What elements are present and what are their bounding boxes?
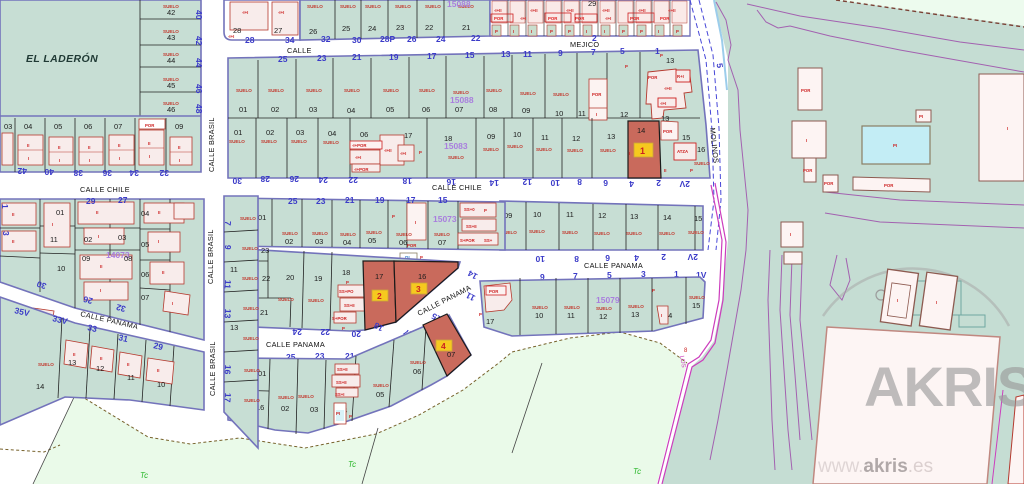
- svg-text:12: 12: [599, 312, 607, 321]
- svg-text:05: 05: [54, 122, 62, 131]
- svg-text:SUELO: SUELO: [323, 140, 339, 145]
- svg-text:II: II: [96, 210, 98, 215]
- svg-text:10: 10: [533, 210, 541, 219]
- svg-text:I: I: [149, 154, 150, 159]
- svg-text:I: I: [661, 313, 662, 318]
- svg-text:9: 9: [558, 48, 563, 58]
- svg-text:SUELO: SUELO: [689, 295, 705, 300]
- svg-text:24: 24: [436, 34, 446, 44]
- svg-text:6: 6: [603, 178, 608, 188]
- svg-text:II: II: [27, 143, 29, 148]
- svg-text:ATZA: ATZA: [677, 149, 688, 154]
- svg-text:25: 25: [278, 54, 288, 64]
- svg-text:01: 01: [239, 105, 247, 114]
- svg-text:1: 1: [655, 46, 660, 56]
- svg-text:I: I: [936, 300, 937, 305]
- svg-text:02: 02: [266, 128, 274, 137]
- svg-text:22: 22: [262, 274, 270, 283]
- svg-text:CALLE PANAMA: CALLE PANAMA: [266, 340, 325, 349]
- svg-text:07: 07: [114, 122, 122, 131]
- svg-text:SS+II: SS+II: [336, 380, 347, 385]
- svg-text:42: 42: [194, 36, 204, 46]
- svg-text:28P: 28P: [380, 34, 395, 44]
- svg-text:2V: 2V: [679, 179, 690, 189]
- svg-text:II: II: [118, 143, 120, 148]
- svg-text:09: 09: [175, 122, 183, 131]
- svg-text:SUELO: SUELO: [562, 230, 578, 235]
- svg-text:34: 34: [129, 168, 139, 178]
- svg-text:2V: 2V: [687, 252, 698, 262]
- svg-text:P: P: [346, 280, 349, 285]
- svg-text:06: 06: [413, 367, 421, 376]
- svg-text:CALLE CHILE: CALLE CHILE: [80, 185, 130, 194]
- svg-text:15088: 15088: [450, 95, 474, 105]
- svg-text:48: 48: [194, 104, 204, 114]
- svg-text:42: 42: [17, 166, 27, 176]
- svg-text:11: 11: [541, 133, 549, 142]
- svg-text:21: 21: [462, 23, 470, 32]
- svg-text:I: I: [658, 29, 659, 34]
- svg-text:12: 12: [96, 364, 104, 373]
- svg-text:POR: POR: [648, 75, 658, 80]
- svg-text:II: II: [157, 368, 159, 373]
- svg-text:11: 11: [222, 279, 233, 289]
- svg-text:I: I: [513, 29, 514, 34]
- svg-text:11: 11: [127, 373, 135, 382]
- svg-text:11: 11: [523, 49, 532, 59]
- svg-text:-I+POR: -I+POR: [354, 167, 369, 172]
- svg-text:26: 26: [289, 174, 299, 184]
- svg-text:POR: POR: [494, 16, 504, 21]
- svg-text:R+I: R+I: [677, 74, 684, 79]
- svg-text:04: 04: [328, 129, 336, 138]
- svg-text:12: 12: [598, 211, 606, 220]
- svg-text:I: I: [596, 112, 597, 117]
- svg-text:SUELO: SUELO: [659, 231, 675, 236]
- svg-text:II: II: [162, 270, 164, 275]
- svg-text:I: I: [100, 288, 101, 293]
- svg-text:P: P: [690, 168, 693, 173]
- svg-text:SS+II: SS+II: [337, 367, 348, 372]
- svg-text:17: 17: [427, 51, 437, 61]
- svg-text:SUELO: SUELO: [486, 88, 502, 93]
- svg-text:27: 27: [274, 26, 282, 35]
- svg-text:POR: POR: [630, 16, 640, 21]
- svg-text:POR: POR: [801, 88, 811, 93]
- svg-text:15: 15: [438, 195, 448, 205]
- svg-text:-I+I: -I+I: [355, 155, 361, 160]
- svg-text:CALLE PANAMA: CALLE PANAMA: [584, 261, 643, 270]
- svg-text:8: 8: [574, 254, 579, 264]
- svg-text:29: 29: [588, 0, 596, 8]
- svg-text:SUELO: SUELO: [383, 88, 399, 93]
- svg-text:CALLE BRASIL: CALLE BRASIL: [207, 117, 216, 172]
- svg-text:17: 17: [404, 131, 412, 140]
- svg-text:17: 17: [406, 195, 416, 205]
- svg-text:SUELO: SUELO: [366, 230, 382, 235]
- svg-text:SUELO: SUELO: [453, 90, 469, 95]
- svg-text:SUELO: SUELO: [243, 336, 259, 341]
- svg-text:SUELO: SUELO: [312, 231, 328, 236]
- svg-text:I: I: [806, 138, 807, 143]
- svg-text:07: 07: [141, 293, 149, 302]
- svg-text:-I+II: -I+II: [664, 86, 672, 91]
- svg-text:P: P: [676, 29, 679, 34]
- svg-text:S+POR: S+POR: [460, 238, 476, 243]
- svg-text:2: 2: [592, 33, 597, 43]
- svg-text:PI: PI: [336, 411, 340, 416]
- svg-text:AKRIS: AKRIS: [864, 355, 1024, 418]
- svg-text:-I+I: -I+I: [400, 151, 406, 156]
- svg-text:15079: 15079: [596, 295, 620, 305]
- svg-text:-I+II: -I+II: [668, 8, 676, 13]
- svg-text:30: 30: [352, 35, 362, 45]
- svg-text:42: 42: [167, 8, 175, 17]
- svg-text:SS+: SS+: [484, 238, 493, 243]
- svg-text:03: 03: [310, 405, 318, 414]
- svg-text:09: 09: [487, 132, 495, 141]
- svg-text:I: I: [179, 158, 180, 163]
- svg-text:18: 18: [402, 176, 412, 186]
- svg-text:SUELO: SUELO: [344, 88, 360, 93]
- svg-text:I: I: [531, 29, 532, 34]
- svg-text:-I+II: -I+II: [494, 8, 502, 13]
- svg-text:25: 25: [288, 196, 298, 206]
- svg-text:SUELO: SUELO: [38, 362, 54, 367]
- svg-text:24: 24: [292, 327, 302, 337]
- svg-text:I: I: [897, 298, 898, 303]
- svg-text:10: 10: [535, 254, 545, 264]
- svg-text:11: 11: [50, 235, 58, 244]
- svg-text:12: 12: [522, 177, 532, 187]
- svg-text:05: 05: [141, 240, 149, 249]
- svg-text:06: 06: [422, 105, 430, 114]
- svg-text:4: 4: [441, 341, 446, 351]
- svg-text:3: 3: [1, 231, 11, 236]
- svg-text:SS+0: SS+0: [464, 207, 475, 212]
- svg-text:18: 18: [342, 268, 350, 277]
- svg-text:10: 10: [550, 178, 560, 188]
- svg-text:SUELO: SUELO: [373, 383, 389, 388]
- svg-text:10: 10: [555, 109, 563, 118]
- svg-text:26: 26: [407, 34, 417, 44]
- svg-text:05: 05: [386, 105, 394, 114]
- svg-text:04: 04: [343, 238, 351, 247]
- svg-text:I: I: [89, 158, 90, 163]
- svg-text:44: 44: [194, 58, 204, 68]
- svg-text:P: P: [479, 312, 482, 317]
- svg-text:I: I: [629, 151, 630, 156]
- svg-text:SS+II: SS+II: [344, 303, 355, 308]
- svg-text:6: 6: [605, 253, 610, 263]
- svg-text:28: 28: [245, 35, 255, 45]
- svg-text:34: 34: [285, 35, 295, 45]
- svg-text:13: 13: [631, 310, 639, 319]
- svg-text:I: I: [586, 29, 587, 34]
- svg-text:10: 10: [157, 380, 165, 389]
- svg-text:SUELO: SUELO: [483, 147, 499, 152]
- svg-text:-I+II: -I+II: [566, 8, 574, 13]
- svg-text:POR: POR: [145, 123, 155, 128]
- svg-text:45: 45: [167, 81, 175, 90]
- svg-text:16: 16: [446, 177, 456, 187]
- svg-text:10: 10: [57, 264, 65, 273]
- svg-text:19: 19: [375, 195, 385, 205]
- svg-text:22: 22: [348, 175, 358, 185]
- svg-text:SUELO: SUELO: [308, 298, 324, 303]
- svg-text:14: 14: [637, 126, 645, 135]
- svg-text:06: 06: [84, 122, 92, 131]
- svg-text:SS+I: SS+I: [335, 392, 344, 397]
- svg-text:07: 07: [447, 350, 455, 359]
- svg-text:CALLE BRASIL: CALLE BRASIL: [206, 229, 215, 284]
- svg-text:13: 13: [230, 323, 238, 332]
- svg-text:I: I: [158, 239, 159, 244]
- svg-text:13: 13: [607, 132, 615, 141]
- svg-text:SUELO: SUELO: [594, 231, 610, 236]
- svg-text:01: 01: [234, 128, 242, 137]
- svg-text:I: I: [98, 234, 99, 239]
- svg-text:SUELO: SUELO: [306, 88, 322, 93]
- svg-text:SUELO: SUELO: [694, 161, 710, 166]
- svg-text:09: 09: [82, 254, 90, 263]
- svg-text:13: 13: [501, 49, 511, 59]
- svg-text:5: 5: [620, 46, 625, 56]
- svg-text:15083: 15083: [444, 141, 468, 151]
- svg-text:SUELO: SUELO: [282, 231, 298, 236]
- svg-text:07: 07: [455, 105, 463, 114]
- svg-text:P: P: [342, 326, 345, 331]
- svg-text:POR: POR: [575, 16, 585, 21]
- svg-text:SUELO: SUELO: [425, 4, 441, 9]
- svg-text:06: 06: [399, 238, 407, 247]
- svg-text:SS+II: SS+II: [466, 224, 477, 229]
- svg-text:SUELO: SUELO: [268, 88, 284, 93]
- svg-text:SUELO: SUELO: [291, 139, 307, 144]
- svg-text:04: 04: [24, 122, 32, 131]
- svg-text:P: P: [640, 29, 643, 34]
- svg-text:11: 11: [578, 109, 586, 118]
- svg-text:POR: POR: [663, 129, 673, 134]
- svg-text:32: 32: [159, 168, 169, 178]
- svg-text:SUELO: SUELO: [236, 88, 252, 93]
- svg-text:21: 21: [352, 52, 362, 62]
- svg-text:P: P: [392, 214, 395, 219]
- svg-text:20: 20: [351, 329, 361, 339]
- svg-text:II: II: [127, 362, 129, 367]
- svg-text:2: 2: [656, 178, 661, 188]
- svg-text:SUELO: SUELO: [564, 305, 580, 310]
- svg-text:P: P: [484, 208, 487, 213]
- svg-text:P: P: [550, 29, 553, 34]
- svg-text:7: 7: [591, 47, 596, 57]
- svg-text:I: I: [52, 222, 53, 227]
- svg-text:SUELO: SUELO: [396, 232, 412, 237]
- svg-text:II: II: [100, 264, 102, 269]
- svg-text:13: 13: [630, 212, 638, 221]
- svg-text:36: 36: [102, 168, 112, 178]
- svg-text:02: 02: [84, 235, 92, 244]
- svg-text:SUELO: SUELO: [243, 306, 259, 311]
- svg-text:Tc: Tc: [348, 460, 356, 469]
- svg-text:27: 27: [118, 195, 128, 205]
- svg-text:CALLE: CALLE: [287, 46, 312, 55]
- svg-text:08: 08: [489, 105, 497, 114]
- svg-text:40: 40: [44, 167, 54, 177]
- svg-text:I: I: [28, 156, 29, 161]
- svg-text:4: 4: [634, 253, 639, 263]
- svg-text:SUELO: SUELO: [298, 394, 314, 399]
- svg-text:30: 30: [232, 176, 242, 186]
- svg-text:12: 12: [572, 134, 580, 143]
- svg-text:19: 19: [314, 274, 322, 283]
- svg-text:46: 46: [194, 84, 204, 94]
- svg-text:SS+PO: SS+PO: [339, 289, 354, 294]
- svg-text:40: 40: [194, 10, 204, 20]
- svg-text:SUELO: SUELO: [596, 306, 612, 311]
- svg-text:-I+II: -I+II: [384, 148, 392, 153]
- svg-text:13: 13: [666, 56, 674, 65]
- svg-text:06: 06: [360, 130, 368, 139]
- svg-text:09: 09: [522, 106, 530, 115]
- svg-text:16: 16: [697, 145, 705, 154]
- svg-text:SUELO: SUELO: [278, 395, 294, 400]
- svg-text:II: II: [664, 168, 666, 173]
- svg-text:01: 01: [258, 213, 266, 222]
- svg-text:SUELO: SUELO: [520, 91, 536, 96]
- svg-text:POR: POR: [660, 16, 670, 21]
- svg-text:25: 25: [342, 24, 350, 33]
- svg-text:17: 17: [375, 272, 383, 281]
- svg-text:SUELO: SUELO: [600, 148, 616, 153]
- svg-text:15088: 15088: [447, 0, 471, 9]
- svg-text:II: II: [12, 212, 14, 217]
- svg-text:SUELO: SUELO: [340, 232, 356, 237]
- svg-text:2: 2: [661, 252, 666, 262]
- svg-text:SUELO: SUELO: [244, 398, 260, 403]
- svg-text:04: 04: [347, 106, 355, 115]
- svg-text:P: P: [625, 64, 628, 69]
- svg-text:15: 15: [465, 50, 475, 60]
- svg-text:22: 22: [425, 23, 433, 32]
- svg-text:13: 13: [222, 308, 233, 319]
- svg-text:-I+II: -I+II: [638, 8, 646, 13]
- svg-text:-I+I: -I+I: [520, 16, 526, 21]
- svg-text:Tc: Tc: [140, 471, 148, 480]
- svg-text:23: 23: [316, 196, 326, 206]
- svg-text:P: P: [495, 29, 498, 34]
- svg-text:03: 03: [4, 122, 12, 131]
- svg-text:II: II: [100, 356, 102, 361]
- svg-text:-I+I: -I+I: [660, 101, 666, 106]
- svg-text:POR: POR: [884, 183, 894, 188]
- svg-text:SUELO: SUELO: [244, 368, 260, 373]
- svg-text:03: 03: [309, 105, 317, 114]
- svg-text:03: 03: [296, 128, 304, 137]
- svg-text:14: 14: [489, 178, 499, 188]
- svg-text:SUELO: SUELO: [261, 139, 277, 144]
- svg-text:17: 17: [222, 392, 233, 403]
- svg-text:44: 44: [167, 56, 175, 65]
- svg-text:23: 23: [396, 23, 404, 32]
- svg-text:SUELO: SUELO: [242, 246, 258, 251]
- svg-text:8: 8: [577, 177, 582, 187]
- svg-text:SUELO: SUELO: [278, 297, 294, 302]
- svg-text:-I+I: -I+I: [605, 16, 611, 21]
- svg-text:S+POR: S+POR: [332, 316, 348, 321]
- svg-text:I: I: [415, 220, 416, 225]
- svg-text:SUELO: SUELO: [419, 88, 435, 93]
- svg-text:10: 10: [535, 311, 543, 320]
- svg-text:17: 17: [486, 317, 494, 326]
- svg-text:46: 46: [167, 105, 175, 114]
- svg-text:13: 13: [68, 358, 76, 367]
- svg-text:PI: PI: [893, 143, 897, 148]
- svg-text:SUELO: SUELO: [240, 216, 256, 221]
- svg-text:11: 11: [230, 265, 238, 274]
- svg-text:SUELO: SUELO: [507, 144, 523, 149]
- svg-text:-I+I: -I+I: [228, 34, 234, 39]
- svg-text:Tc: Tc: [633, 467, 641, 476]
- svg-text:CALLE BRASIL: CALLE BRASIL: [208, 341, 217, 396]
- svg-text:21: 21: [345, 195, 355, 205]
- svg-text:SUELO: SUELO: [536, 147, 552, 152]
- svg-text:I: I: [119, 156, 120, 161]
- svg-text:I: I: [59, 158, 60, 163]
- svg-text:32: 32: [321, 34, 331, 44]
- svg-text:I: I: [1007, 126, 1008, 131]
- svg-text:16: 16: [222, 364, 233, 375]
- svg-text:PI: PI: [919, 114, 923, 119]
- svg-text:03: 03: [118, 233, 126, 242]
- svg-text:26: 26: [309, 27, 317, 36]
- svg-text:38: 38: [73, 168, 83, 178]
- svg-text:P: P: [652, 288, 655, 293]
- svg-text:SUELO: SUELO: [242, 276, 258, 281]
- svg-text:43: 43: [167, 33, 175, 42]
- svg-text:22: 22: [471, 33, 481, 43]
- svg-text:SUELO: SUELO: [688, 230, 704, 235]
- svg-text:I: I: [172, 301, 173, 306]
- svg-text:-I+II: -I+II: [602, 8, 610, 13]
- svg-text:POR: POR: [489, 289, 499, 294]
- svg-text:15: 15: [692, 301, 700, 310]
- svg-text:-I+POR: -I+POR: [352, 143, 367, 148]
- svg-text:14: 14: [36, 382, 44, 391]
- svg-text:SUELO: SUELO: [307, 4, 323, 9]
- svg-text:05: 05: [376, 390, 384, 399]
- svg-text:SUELO: SUELO: [628, 304, 644, 309]
- svg-text:15073: 15073: [433, 214, 457, 224]
- svg-text:02: 02: [271, 105, 279, 114]
- svg-text:II: II: [58, 145, 60, 150]
- svg-text:20: 20: [286, 273, 294, 282]
- svg-text:10: 10: [513, 130, 521, 139]
- svg-text:-I+I: -I+I: [278, 10, 284, 15]
- svg-text:3: 3: [416, 284, 421, 294]
- svg-text:SUELO: SUELO: [365, 4, 381, 9]
- svg-text:-I+II: -I+II: [530, 8, 538, 13]
- svg-text:15: 15: [694, 214, 702, 223]
- svg-text:24: 24: [368, 24, 376, 33]
- svg-text:14: 14: [663, 213, 671, 222]
- svg-text:POR: POR: [407, 243, 417, 248]
- svg-text:SUELO: SUELO: [529, 229, 545, 234]
- svg-text:II: II: [158, 210, 160, 215]
- svg-text:SUELO: SUELO: [532, 305, 548, 310]
- svg-text:POR: POR: [548, 16, 558, 21]
- svg-text:15: 15: [682, 133, 690, 142]
